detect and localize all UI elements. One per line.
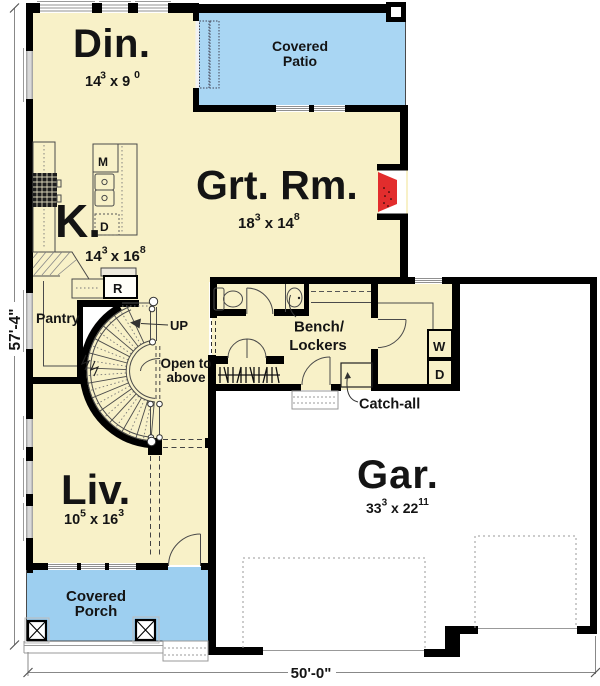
svg-text:143 x 168: 143 x 168 bbox=[85, 244, 146, 265]
svg-text:M: M bbox=[98, 155, 108, 169]
svg-text:183 x 148: 183 x 148 bbox=[238, 211, 300, 232]
svg-text:Open to: Open to bbox=[161, 356, 212, 371]
svg-text:W: W bbox=[433, 339, 446, 354]
svg-text:Covered: Covered bbox=[272, 38, 328, 54]
svg-text:Gar.: Gar. bbox=[357, 453, 439, 497]
svg-text:D: D bbox=[435, 367, 444, 382]
svg-text:Patio: Patio bbox=[283, 53, 317, 69]
svg-text:R: R bbox=[113, 281, 123, 296]
svg-text:Porch: Porch bbox=[75, 603, 118, 620]
svg-text:Liv.: Liv. bbox=[61, 466, 130, 513]
svg-text:Bench/: Bench/ bbox=[294, 319, 345, 336]
svg-text:50'-0": 50'-0" bbox=[291, 665, 332, 682]
svg-text:above: above bbox=[166, 370, 206, 385]
svg-text:UP: UP bbox=[170, 318, 188, 333]
svg-text:D: D bbox=[100, 220, 109, 234]
svg-text:Pantry: Pantry bbox=[36, 310, 80, 326]
svg-text:Grt. Rm.: Grt. Rm. bbox=[196, 162, 358, 208]
svg-text:Lockers: Lockers bbox=[289, 337, 347, 354]
svg-text:K.: K. bbox=[55, 195, 101, 247]
svg-text:Din.: Din. bbox=[73, 22, 151, 66]
svg-text:57'-4": 57'-4" bbox=[7, 308, 24, 350]
svg-text:Catch-all: Catch-all bbox=[359, 397, 420, 413]
